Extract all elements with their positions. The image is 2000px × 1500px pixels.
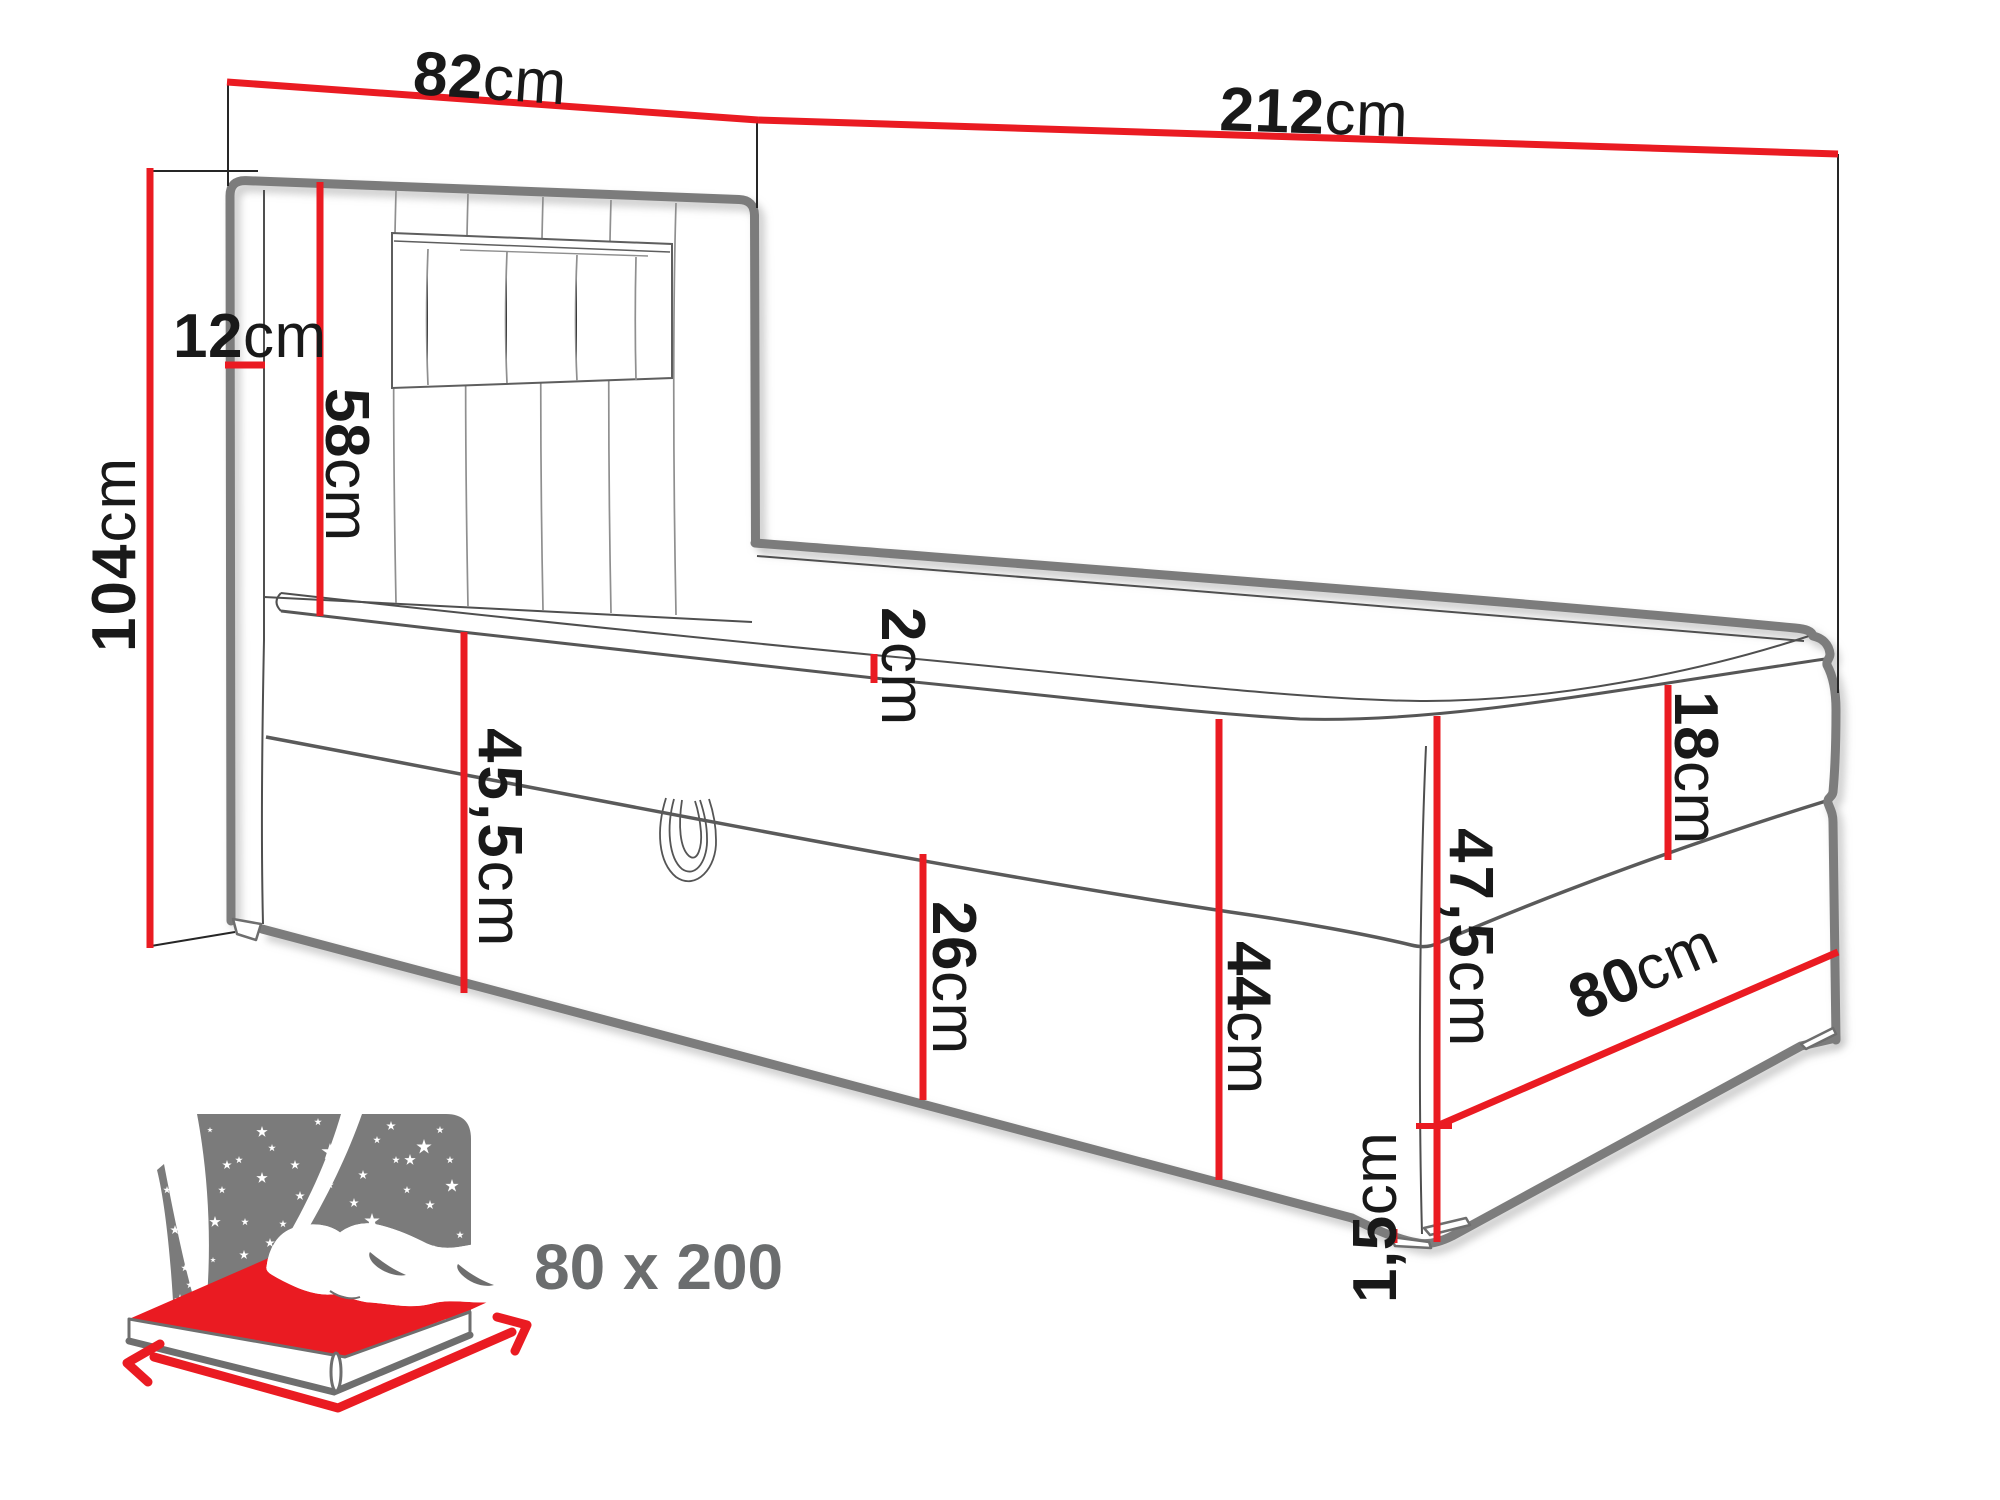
svg-text:18cm: 18cm (1661, 691, 1730, 845)
svg-text:212cm: 212cm (1219, 75, 1410, 151)
svg-text:2cm: 2cm (868, 607, 937, 726)
svg-text:26cm: 26cm (919, 901, 988, 1055)
svg-text:80 x 200: 80 x 200 (534, 1231, 783, 1303)
svg-text:12cm: 12cm (173, 302, 327, 371)
svg-text:80cm: 80cm (1559, 909, 1727, 1034)
svg-text:47,5cm: 47,5cm (1436, 828, 1505, 1049)
svg-text:44cm: 44cm (1214, 941, 1283, 1095)
svg-text:58cm: 58cm (312, 388, 381, 542)
svg-text:45,5cm: 45,5cm (465, 728, 534, 949)
svg-text:1,5cm: 1,5cm (1341, 1132, 1410, 1303)
svg-text:82cm: 82cm (411, 39, 569, 118)
svg-text:104cm: 104cm (80, 456, 149, 652)
